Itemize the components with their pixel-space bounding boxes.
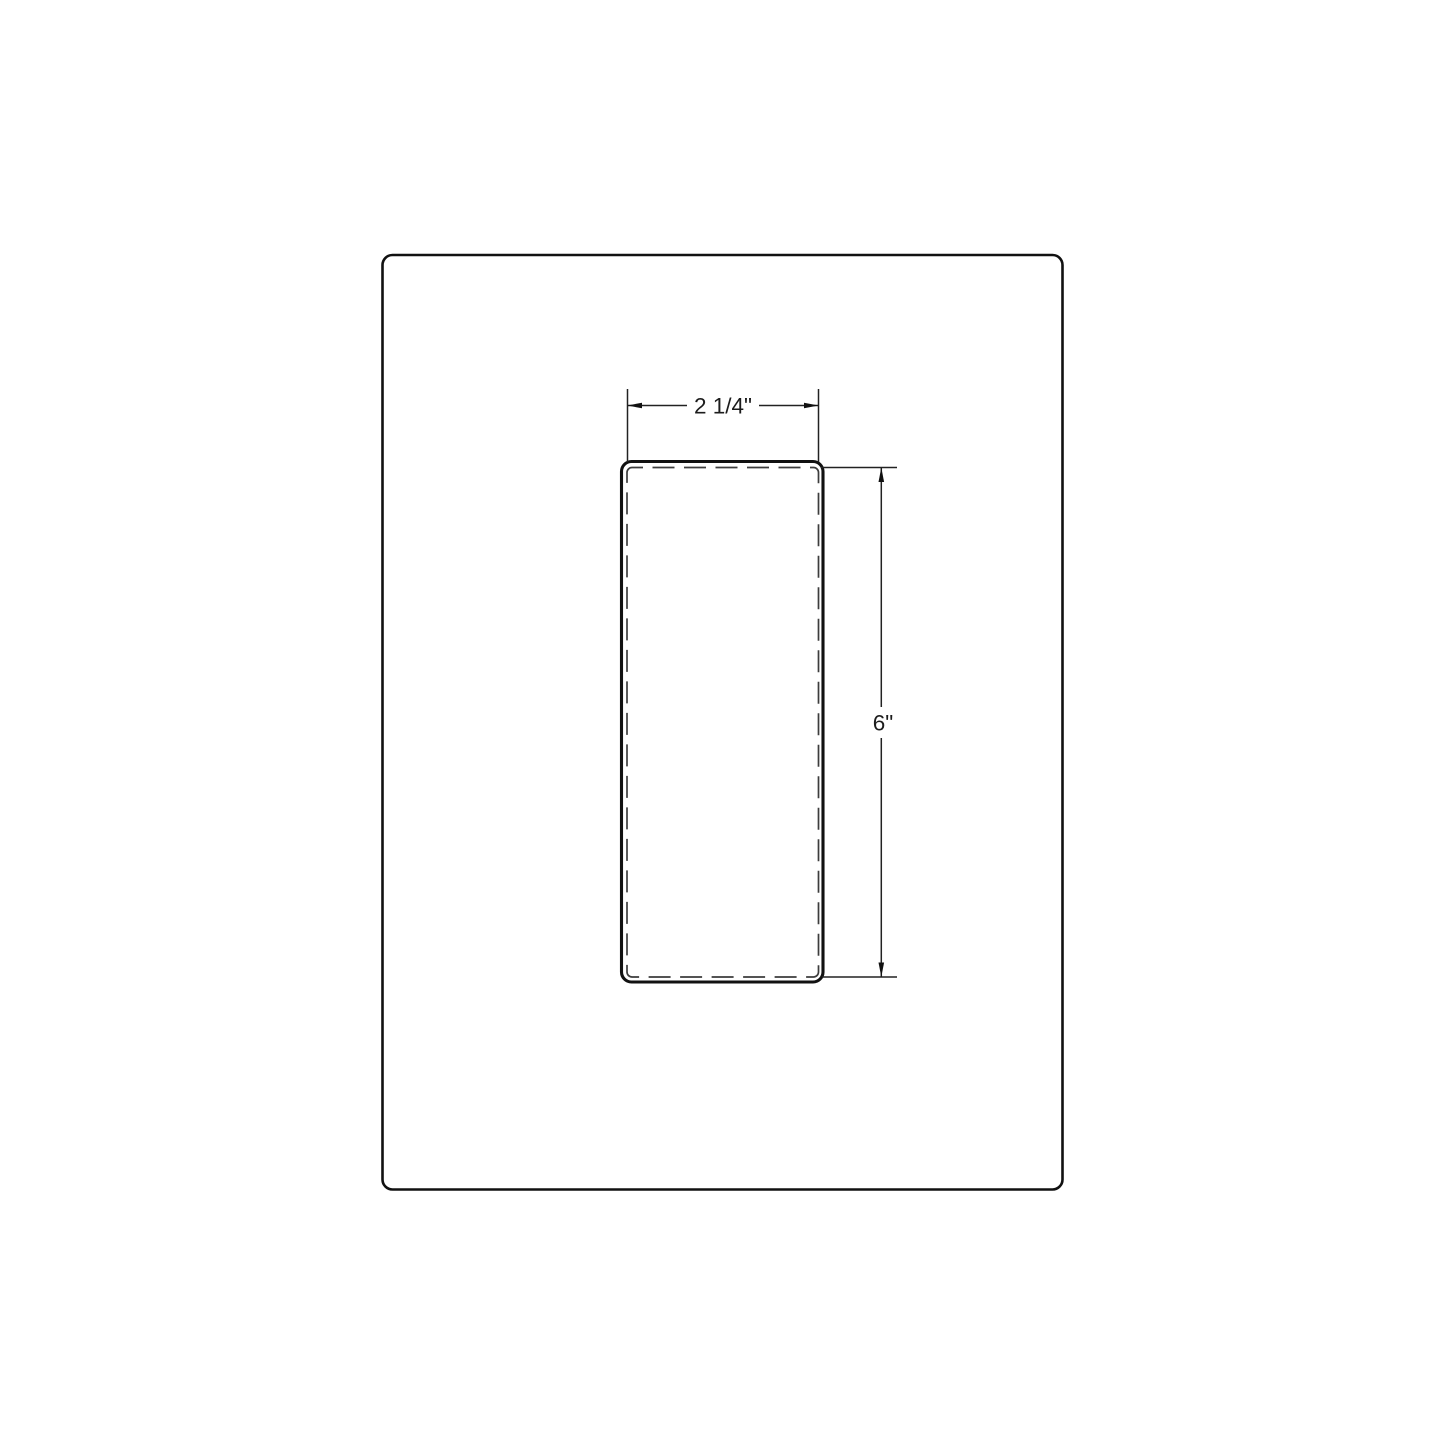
svg-text:2 1/4": 2 1/4": [694, 394, 752, 419]
svg-text:6": 6": [873, 711, 894, 736]
